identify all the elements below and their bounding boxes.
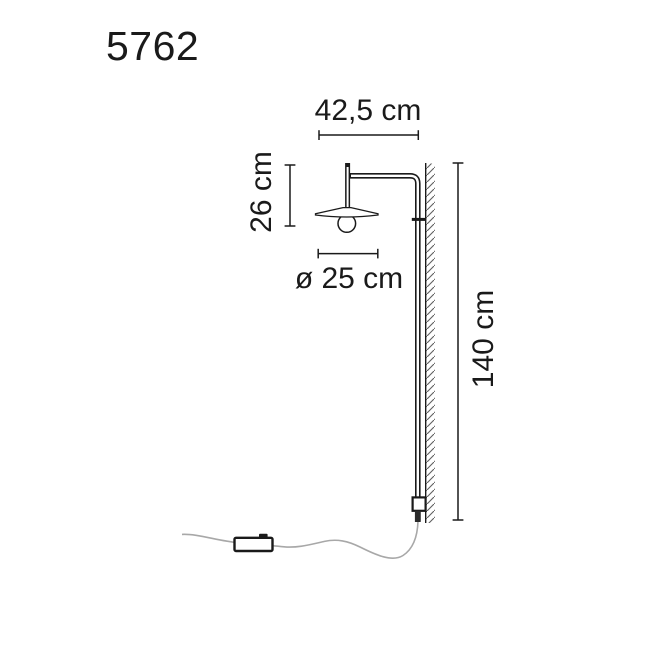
lamp-arm-and-pole: [349, 176, 418, 521]
head-height-dimension-line: [285, 165, 296, 226]
height-dimension-line: [453, 163, 464, 520]
total-height-dimension-label: 140 cm: [469, 290, 499, 388]
inline-switch: [235, 534, 273, 551]
head-height-dimension-label: 26 cm: [247, 151, 277, 233]
shade-diameter-label: ø 25 cm: [295, 264, 403, 294]
model-number: 5762: [106, 26, 199, 67]
power-cable: [182, 521, 418, 558]
diameter-dimension-line: [318, 249, 378, 259]
wall-mount-box: [413, 497, 426, 522]
width-dimension-line: [319, 130, 418, 140]
cable-gland: [415, 511, 421, 522]
width-dimension-label: 42,5 cm: [315, 96, 422, 126]
wall-hatching: [426, 164, 435, 524]
spec-sheet: 5762 42,5 cm 26 cm ø 25 cm 140 cm: [0, 0, 650, 650]
lamp-shade: [316, 208, 379, 217]
